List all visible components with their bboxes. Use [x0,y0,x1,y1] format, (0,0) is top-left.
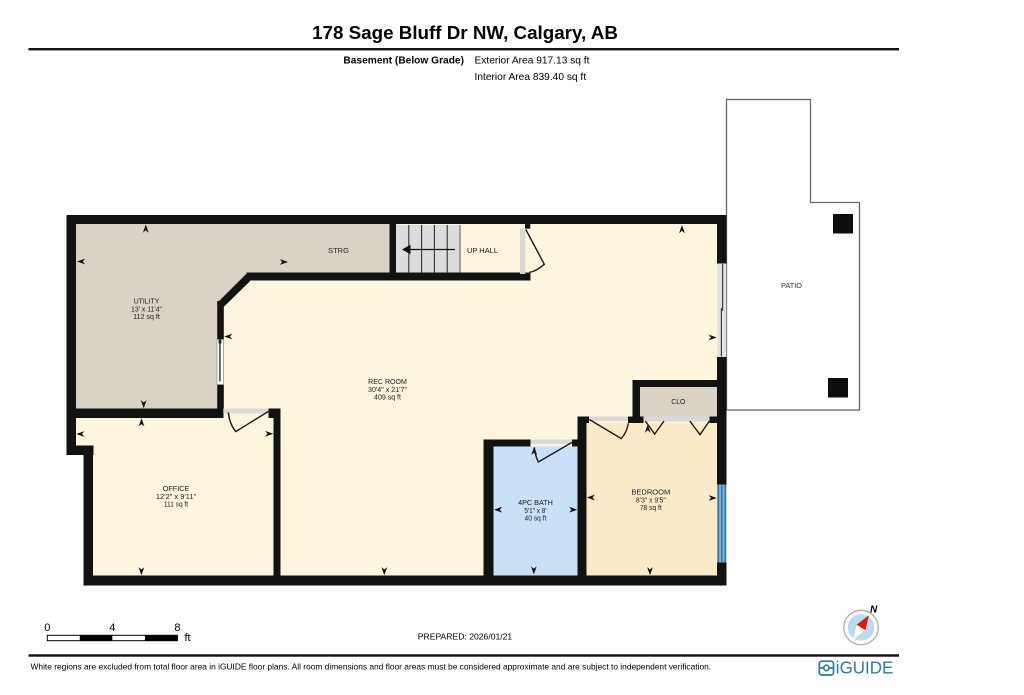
svg-text:0: 0 [44,622,50,634]
svg-text:4: 4 [109,622,115,634]
svg-text:40 sq ft: 40 sq ft [525,514,547,523]
svg-text:UP HALL: UP HALL [467,246,498,255]
svg-text:STRG: STRG [328,246,349,255]
svg-text:White regions are excluded fro: White regions are excluded from total fl… [31,661,712,671]
svg-text:PATIO: PATIO [781,281,802,290]
svg-text:78 sq ft: 78 sq ft [640,503,662,512]
svg-text:Basement (Below Grade): Basement (Below Grade) [343,56,464,67]
svg-text:Exterior Area 917.13 sq ft: Exterior Area 917.13 sq ft [475,56,590,67]
svg-text:Interior Area 839.40 sq ft: Interior Area 839.40 sq ft [475,72,587,83]
svg-text:112 sq ft: 112 sq ft [133,312,160,321]
svg-text:111 sq ft: 111 sq ft [164,500,188,509]
svg-text:N: N [870,605,878,616]
svg-text:178 Sage Bluff Dr NW, Calgary,: 178 Sage Bluff Dr NW, Calgary, AB [312,22,618,43]
svg-text:8: 8 [174,622,180,634]
svg-text:iGUIDE: iGUIDE [836,658,894,678]
svg-text:CLO: CLO [671,397,685,406]
svg-text:ft: ft [185,632,191,644]
svg-text:PREPARED: 2026/01/21: PREPARED: 2026/01/21 [418,631,513,641]
svg-text:409 sq ft: 409 sq ft [374,393,401,402]
